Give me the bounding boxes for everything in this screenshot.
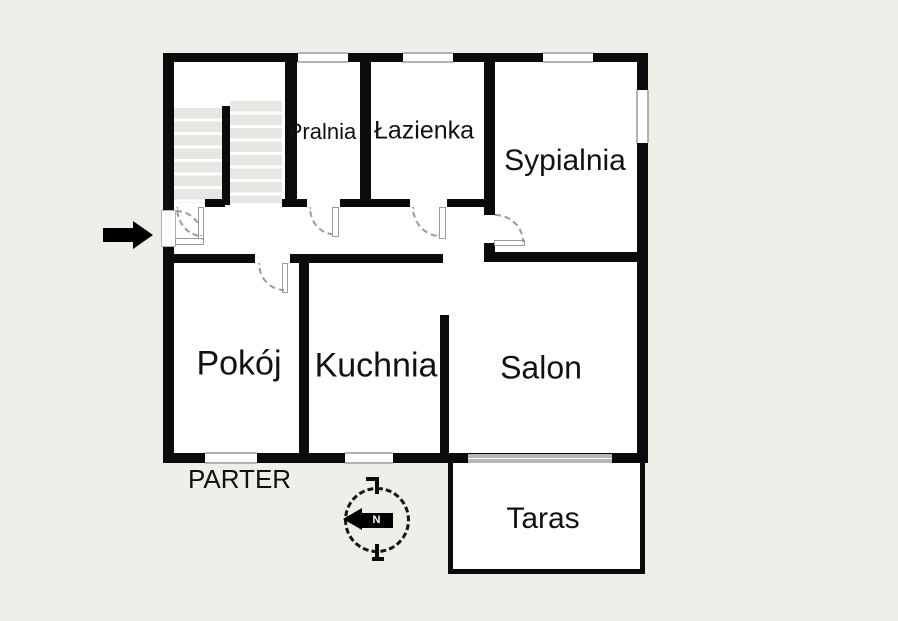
wall-corridor-top-c bbox=[340, 199, 410, 207]
wall-corridor-top-a bbox=[205, 199, 225, 207]
floor-label: PARTER bbox=[188, 464, 291, 495]
window-pralnia bbox=[298, 52, 348, 63]
entrance-door-frame bbox=[161, 210, 176, 247]
wall-left-upper bbox=[163, 53, 174, 210]
wall-left-lower bbox=[163, 247, 174, 463]
wall-corridor-bottom-b bbox=[290, 254, 443, 263]
window-sypialnia-right bbox=[636, 90, 649, 143]
compass-north-icon: N bbox=[336, 470, 426, 570]
wall-pralnia-lazienka bbox=[360, 61, 371, 207]
entrance-arrow-body bbox=[103, 228, 134, 242]
compass-top-tick-foot bbox=[366, 477, 376, 481]
wall-lazienka-sypialnia-upper bbox=[484, 61, 495, 215]
wall-kuchnia-salon bbox=[440, 315, 449, 463]
room-label-kuchnia: Kuchnia bbox=[315, 347, 438, 386]
floor-plan: Pralnia Łazienka Sypialnia Pokój Kuchnia… bbox=[0, 0, 898, 621]
wall-sypialnia-bottom bbox=[484, 252, 648, 262]
room-label-salon: Salon bbox=[500, 350, 582, 387]
stairs-left-flight bbox=[174, 108, 222, 203]
window-sypialnia-top bbox=[543, 52, 593, 63]
window-lazienka bbox=[403, 52, 453, 63]
wall-corridor-top-b bbox=[282, 199, 307, 207]
window-kuchnia bbox=[345, 452, 393, 464]
stairs-right-flight bbox=[230, 101, 282, 203]
window-salon-terrace bbox=[468, 454, 612, 463]
room-label-lazienka: Łazienka bbox=[374, 117, 474, 146]
pralnia-door-leaf bbox=[332, 207, 339, 237]
lazienka-door-leaf bbox=[439, 207, 446, 239]
room-label-taras: Taras bbox=[506, 502, 579, 536]
stairs-divider-wall bbox=[222, 106, 230, 205]
compass-bottom-tick-foot bbox=[372, 557, 384, 561]
entrance-arrow-head bbox=[133, 221, 153, 249]
compass-letter: N bbox=[373, 515, 381, 526]
window-pokoj bbox=[205, 452, 257, 464]
compass-arrow-tail: N bbox=[360, 513, 393, 528]
room-label-pralnia: Pralnia bbox=[288, 119, 356, 145]
wall-pokoj-kuchnia bbox=[299, 254, 309, 463]
entrance-arrow-icon bbox=[103, 221, 153, 249]
room-label-sypialnia: Sypialnia bbox=[504, 144, 626, 178]
room-label-pokoj: Pokój bbox=[196, 345, 281, 384]
wall-corridor-bottom-a bbox=[163, 254, 255, 263]
wall-corridor-top-d bbox=[447, 199, 495, 207]
